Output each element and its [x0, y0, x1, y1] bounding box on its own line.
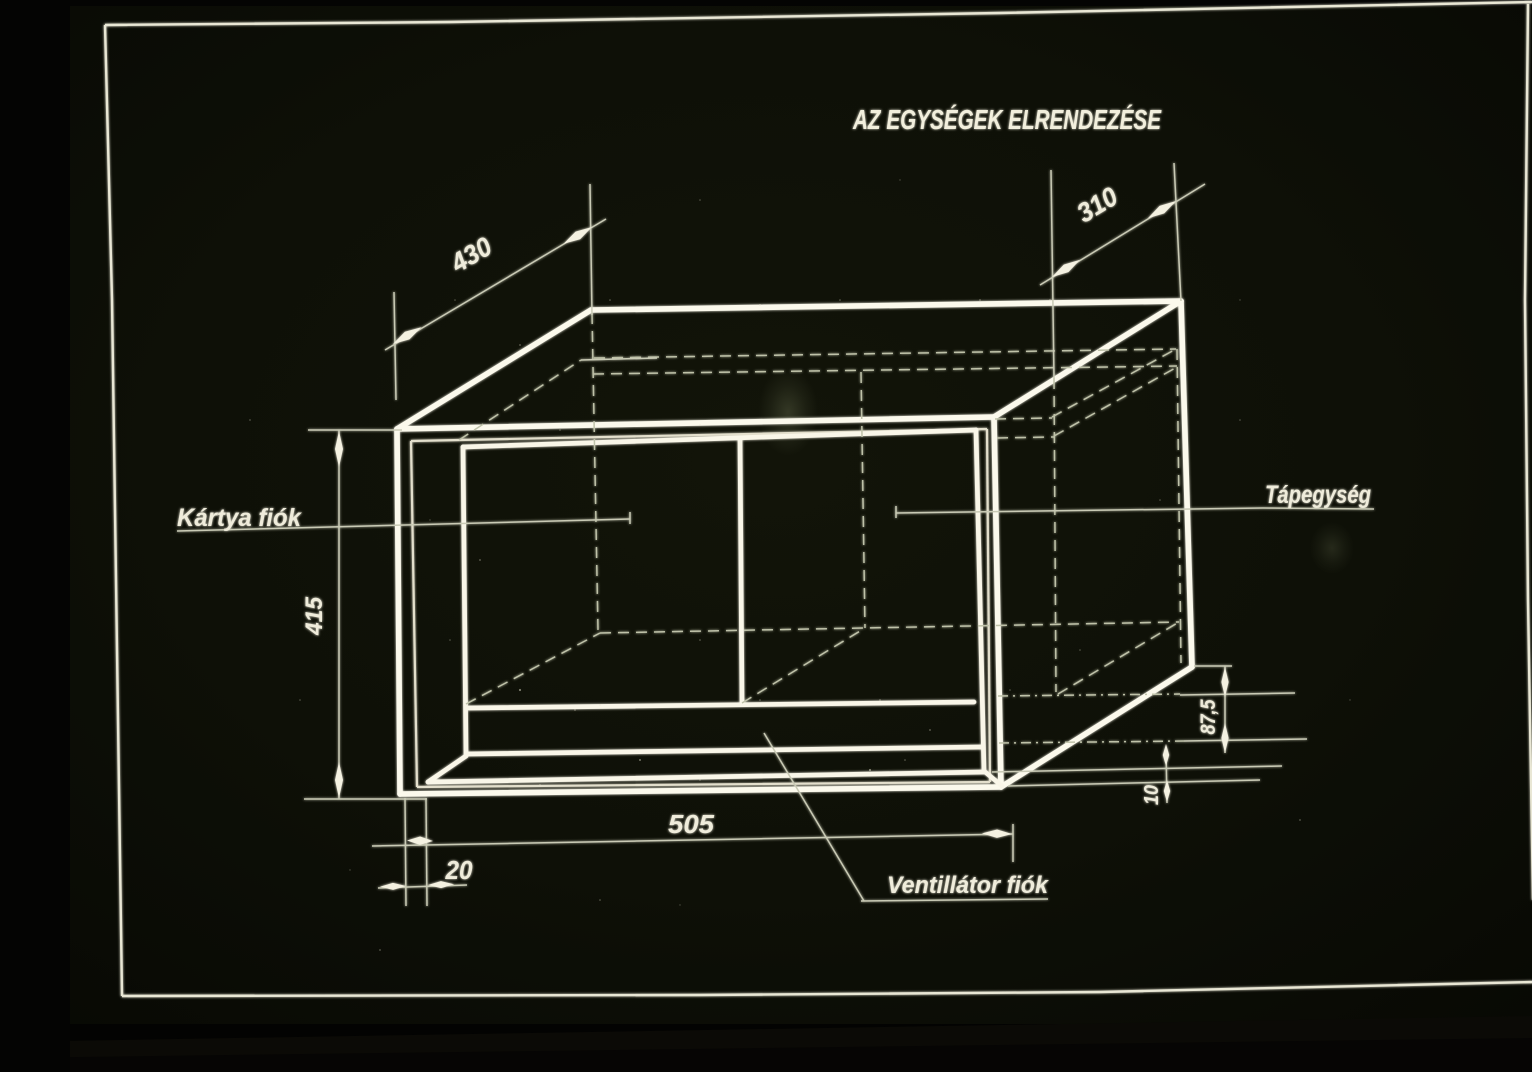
svg-text:Tápegység: Tápegység: [1265, 481, 1371, 509]
svg-text:Ventillátor fiók: Ventillátor fiók: [887, 872, 1050, 899]
svg-text:Kártya fiók: Kártya fiók: [177, 504, 302, 532]
svg-text:20: 20: [445, 855, 473, 885]
svg-text:10: 10: [1141, 785, 1163, 805]
svg-text:87,5: 87,5: [1197, 699, 1220, 734]
svg-text:AZ EGYSÉGEK ELRENDEZÉSE: AZ EGYSÉGEK ELRENDEZÉSE: [852, 104, 1162, 135]
svg-text:415: 415: [301, 596, 328, 636]
svg-text:505: 505: [668, 809, 715, 839]
